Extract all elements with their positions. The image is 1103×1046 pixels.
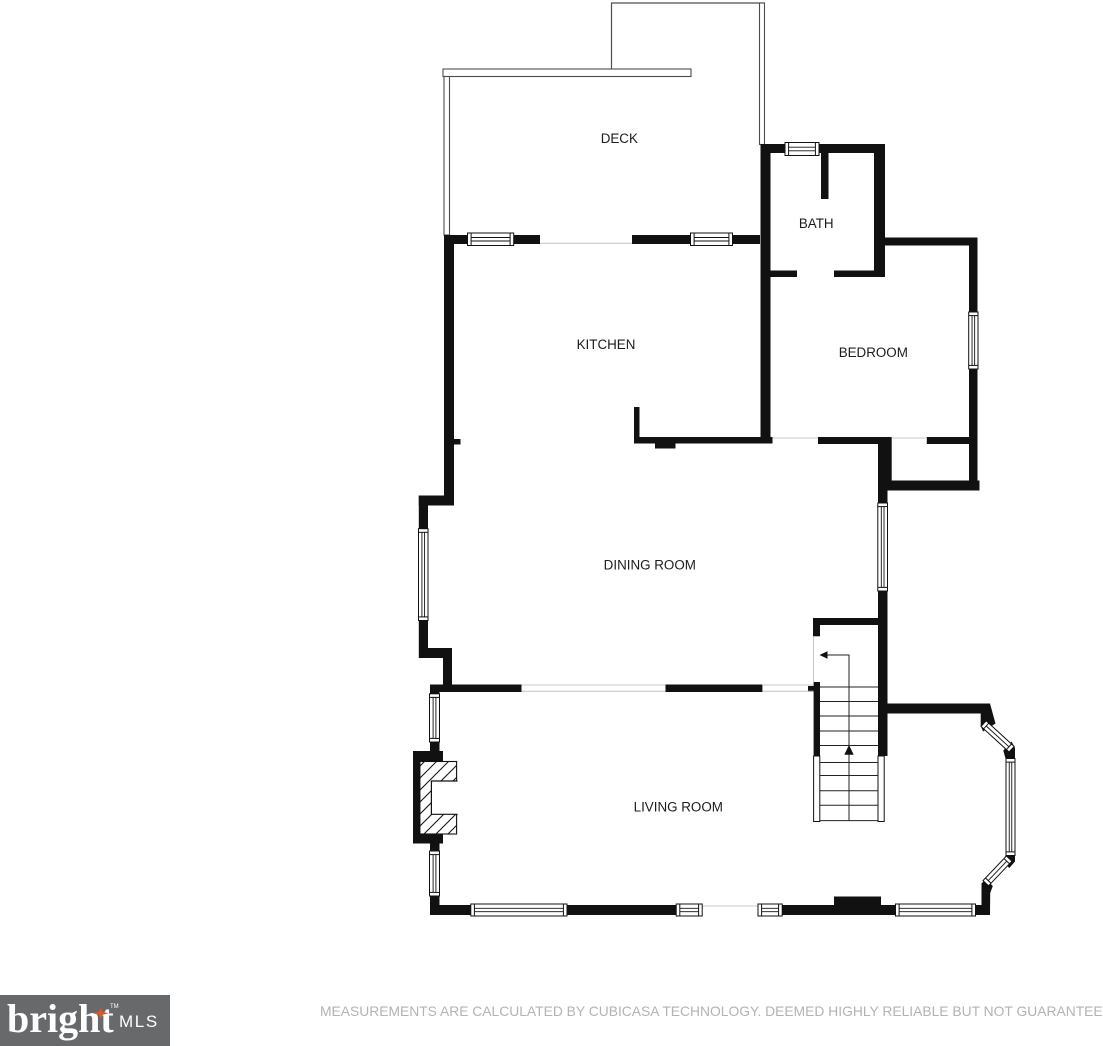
svg-text:BATH: BATH: [799, 216, 834, 231]
svg-text:DINING ROOM: DINING ROOM: [604, 557, 696, 572]
svg-text:BEDROOM: BEDROOM: [839, 345, 908, 360]
svg-text:KITCHEN: KITCHEN: [577, 337, 636, 352]
svg-text:LIVING ROOM: LIVING ROOM: [634, 800, 723, 815]
svg-text:DECK: DECK: [601, 131, 638, 146]
